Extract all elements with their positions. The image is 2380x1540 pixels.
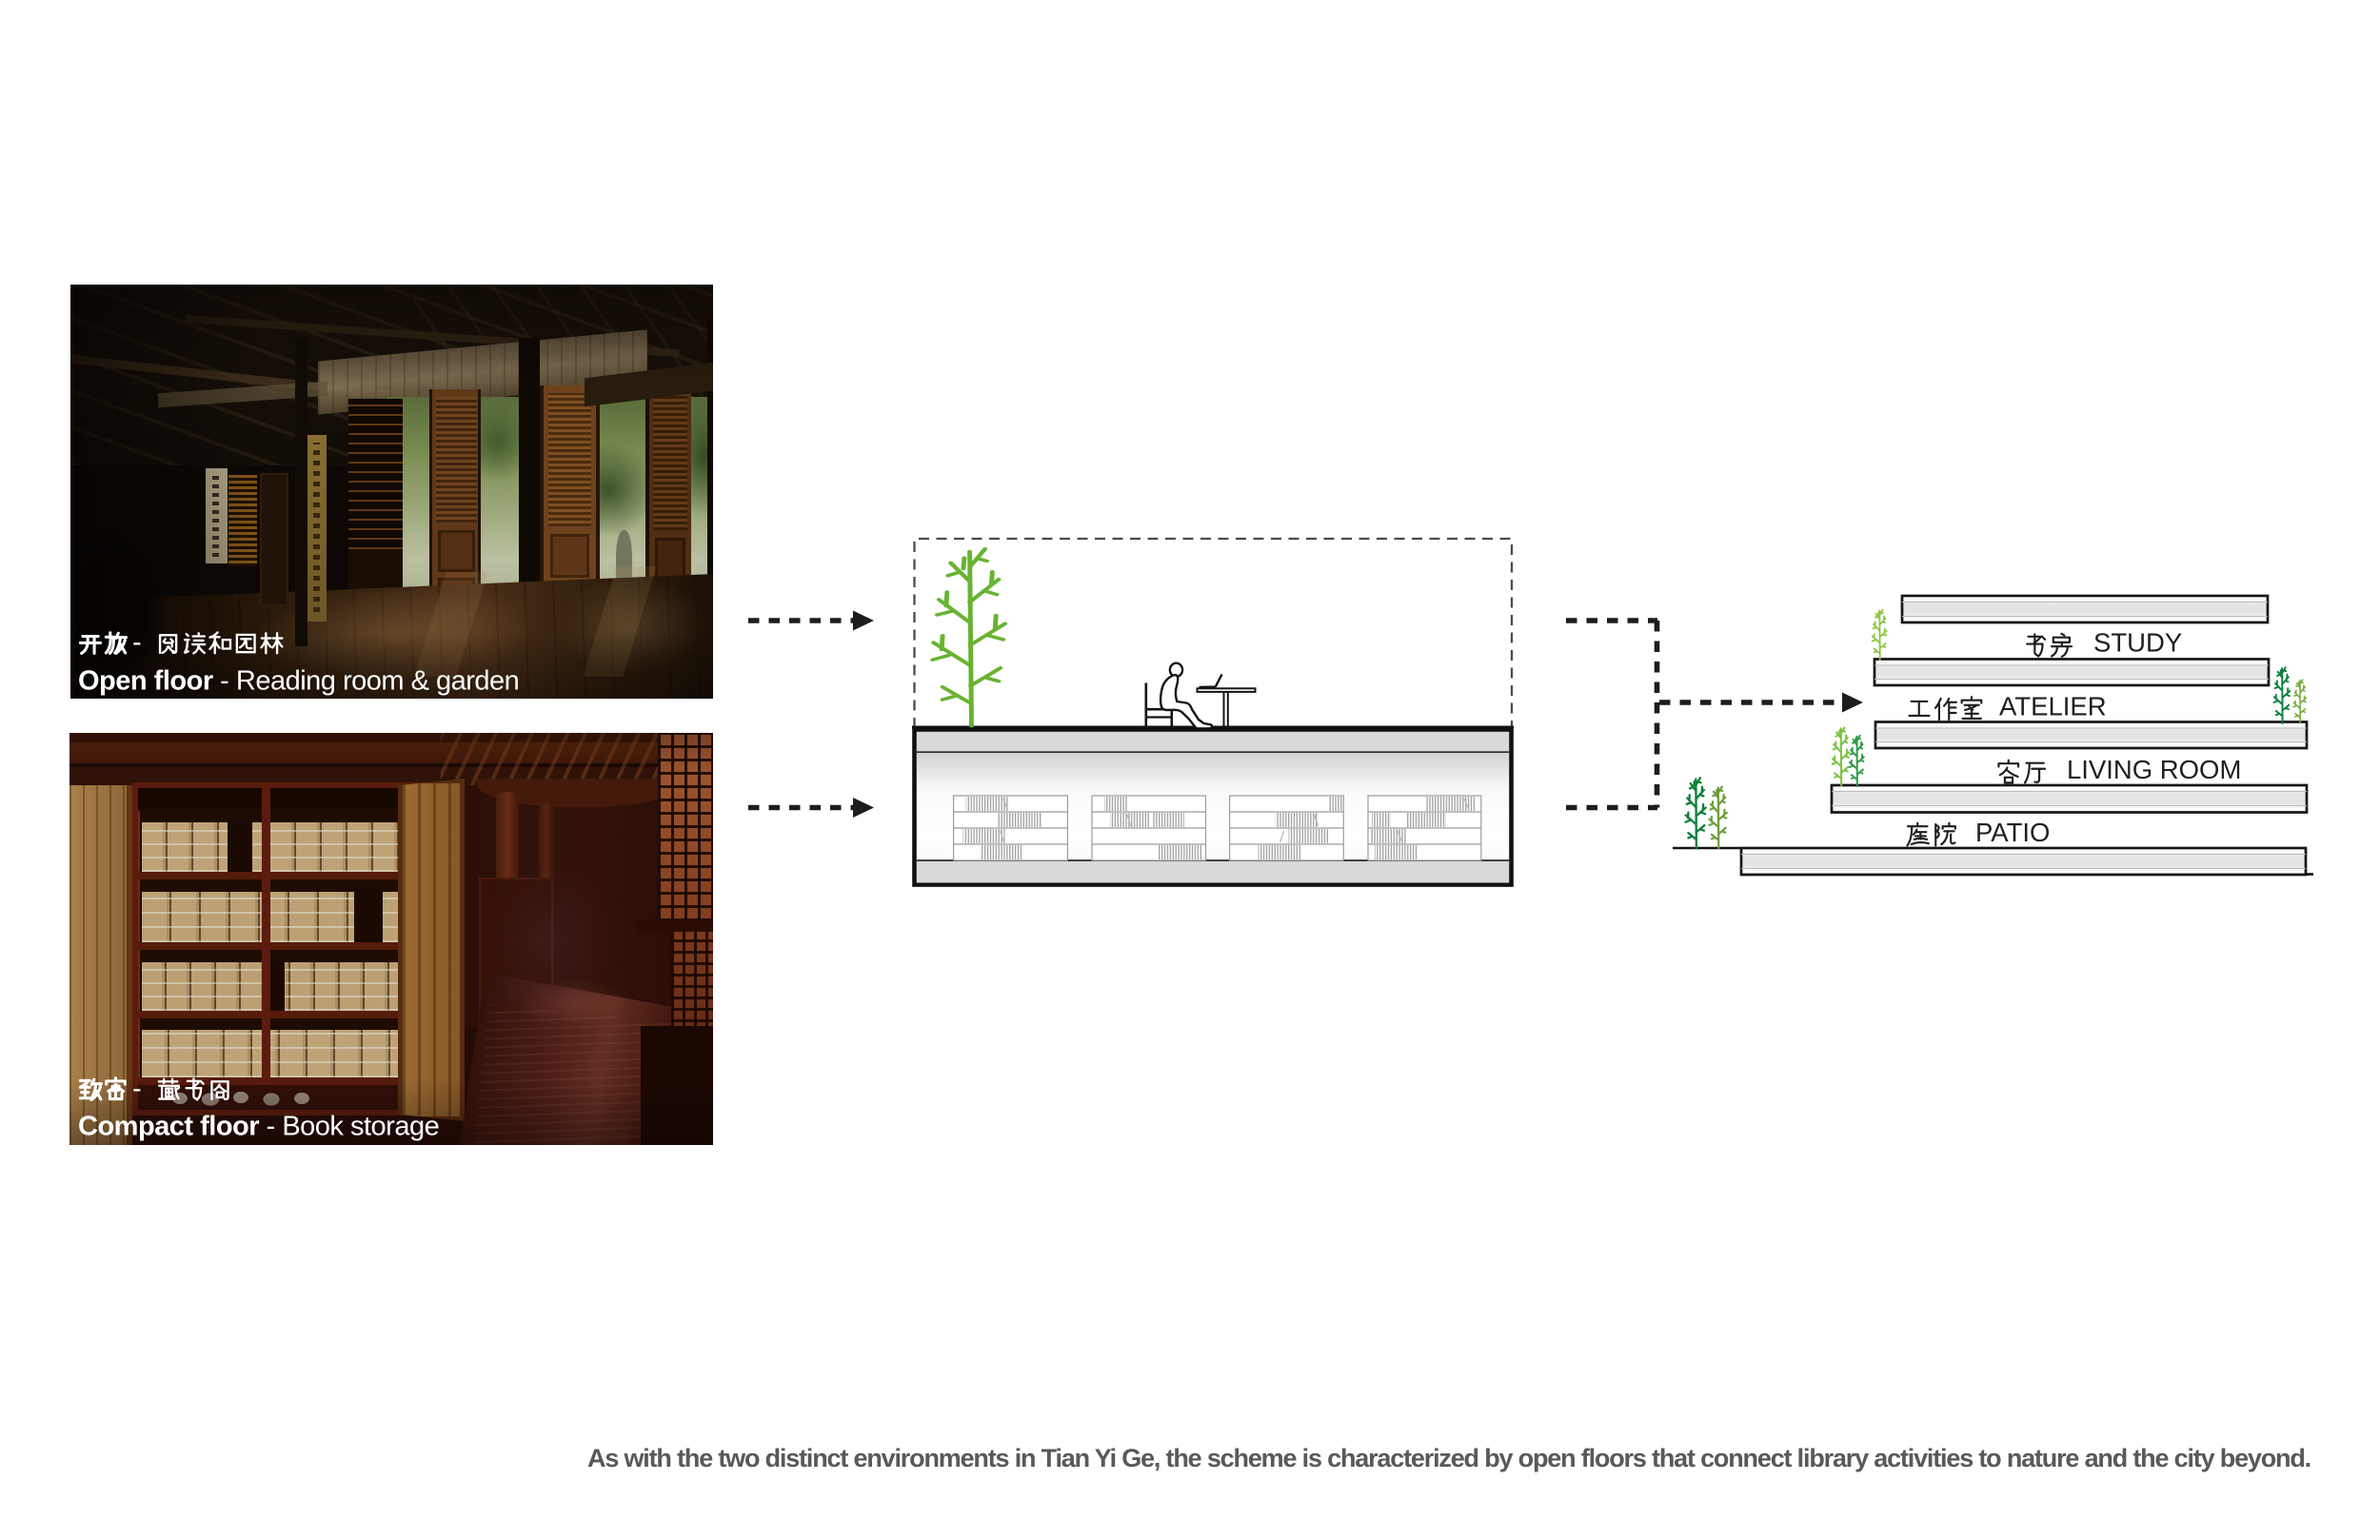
svg-text:PATIO: PATIO [1975,818,2050,847]
svg-text:-: - [132,627,142,658]
svg-text:ATELIER: ATELIER [1999,692,2107,721]
svg-text:LIVING ROOM: LIVING ROOM [2067,755,2241,784]
svg-text:-: - [132,1074,142,1104]
svg-text:Compact floor - Book storage: Compact floor - Book storage [78,1111,439,1141]
svg-text:Open floor - Reading room & ga: Open floor - Reading room & garden [78,665,519,696]
svg-text:STUDY: STUDY [2093,628,2182,658]
